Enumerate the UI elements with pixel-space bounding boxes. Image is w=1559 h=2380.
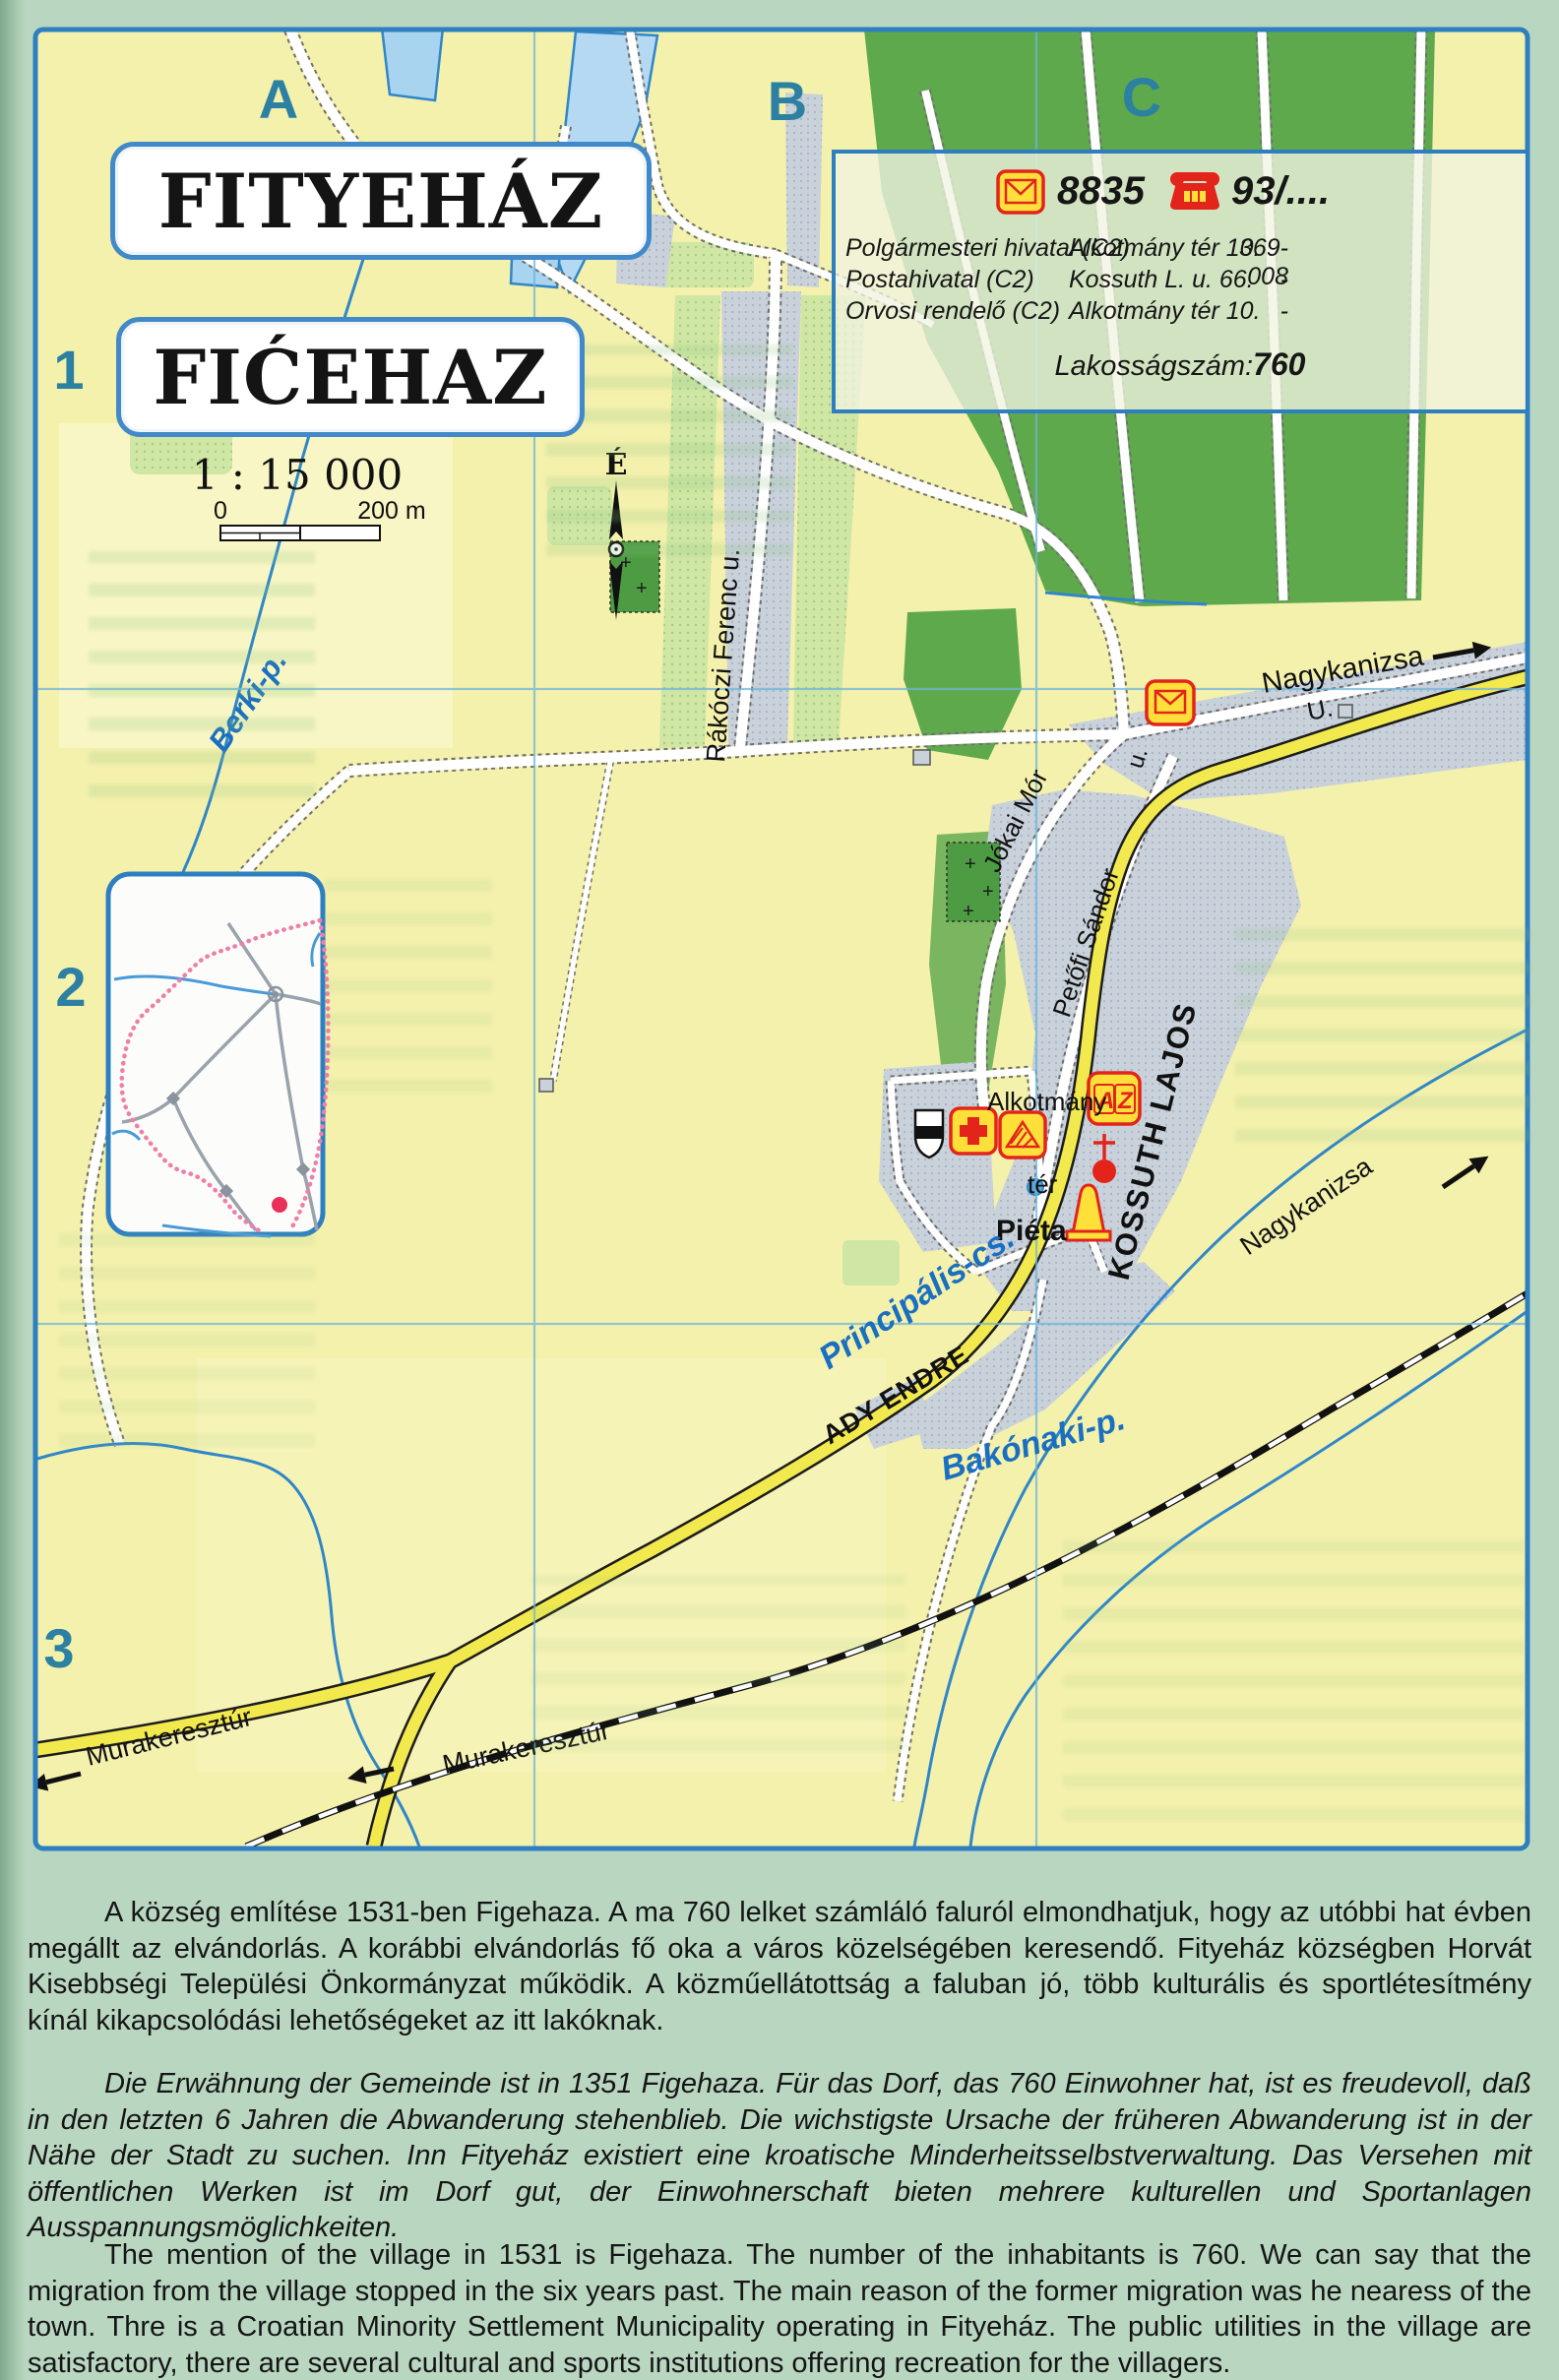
- grid-row-3: 3: [43, 1617, 74, 1679]
- description-english: The mention of the village in 1531 is Fi…: [28, 2237, 1531, 2380]
- open-book-icon: [1000, 1112, 1045, 1158]
- place-label-alkotmany: Alkotmány: [987, 1087, 1106, 1116]
- scale-zero: 0: [214, 497, 227, 525]
- info-row: Postahivatal (C2) Kossuth L. u. 66. -: [836, 266, 1526, 295]
- inset-village-dot: [272, 1197, 287, 1213]
- envelope-icon: [996, 169, 1045, 215]
- description-hungarian: A község említése 1531-ben Figehaza. A m…: [28, 1895, 1531, 2038]
- town-name-croatian: FIĆEHAZ: [116, 317, 585, 437]
- info-row: Polgármesteri hivatal (C2) Alkotmány tér…: [836, 234, 1526, 264]
- postal-code: 8835: [1057, 169, 1145, 214]
- svg-text:+: +: [965, 853, 976, 875]
- population-line: Lakosságszám:760: [954, 346, 1406, 383]
- svg-text:+: +: [982, 881, 994, 903]
- grid-column-a: A: [259, 68, 298, 130]
- scale-bar: [220, 526, 380, 540]
- institution-phone: -: [1200, 266, 1288, 294]
- population-label: Lakosságszám:: [1055, 350, 1254, 382]
- scale-end: 200 m: [357, 497, 425, 525]
- phone-code: 93/....: [1231, 169, 1330, 214]
- grid-row-2: 2: [55, 956, 86, 1018]
- grid-column-b: B: [768, 70, 807, 132]
- post-office-icon: [1147, 681, 1194, 724]
- north-letter: É: [605, 447, 628, 482]
- town-name-croatian-text: FIĆEHAZ: [153, 334, 547, 421]
- institution-phone: -: [1200, 297, 1288, 326]
- coat-of-arms-icon: [915, 1110, 943, 1158]
- grid-row-1: 1: [53, 339, 84, 401]
- town-name-hungarian: FITYEHÁZ: [110, 142, 652, 260]
- svg-text:+: +: [963, 901, 974, 922]
- info-row: Orvosi rendelő (C2) Alkotmány tér 10. -: [836, 297, 1526, 327]
- grid-column-c: C: [1122, 66, 1161, 128]
- phone-icon: [1168, 167, 1221, 215]
- svg-text:+: +: [636, 578, 648, 599]
- inset-map: [108, 874, 328, 1236]
- scale-ratio: 1 : 15 000: [192, 451, 404, 499]
- town-info-box: 8835 93/.... Polgármesteri hivatal (C2) …: [832, 150, 1529, 413]
- town-name-hungarian-text: FITYEHÁZ: [158, 157, 604, 245]
- place-label-ter: tér: [1028, 1169, 1058, 1199]
- atlas-page: + + + + +: [0, 0, 1559, 2380]
- population-value: 760: [1253, 346, 1305, 382]
- description-german: Die Erwähnung der Gemeinde ist in 1351 F…: [28, 2066, 1531, 2246]
- az-letter-z: Z: [1117, 1088, 1134, 1114]
